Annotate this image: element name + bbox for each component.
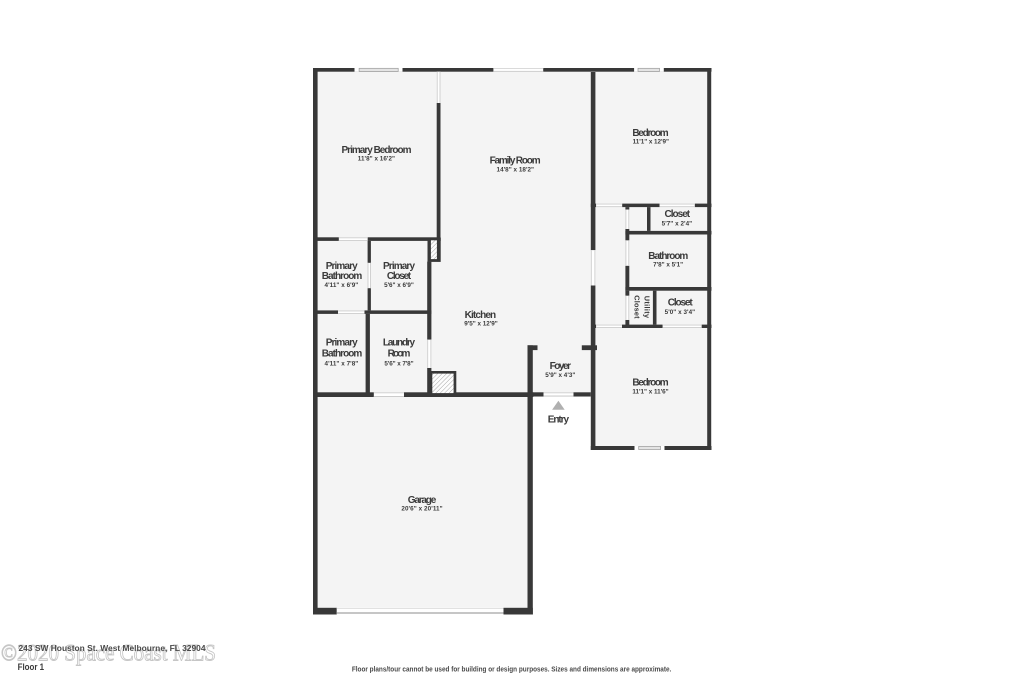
svg-text:Laundry: Laundry	[383, 338, 416, 349]
svg-text:Closet: Closet	[668, 297, 694, 308]
svg-text:5'6" x 7'8": 5'6" x 7'8"	[384, 360, 413, 367]
svg-text:Bathroom: Bathroom	[322, 349, 363, 360]
svg-text:Floor 1: Floor 1	[18, 662, 45, 673]
svg-text:9'5" x 12'9": 9'5" x 12'9"	[464, 321, 498, 328]
svg-text:4'11" x 7'8": 4'11" x 7'8"	[325, 360, 359, 367]
svg-text:Closet: Closet	[387, 271, 412, 282]
svg-text:20'6" x 20'11": 20'6" x 20'11"	[401, 506, 442, 513]
svg-text:Utility: Utility	[643, 296, 652, 319]
svg-text:14'8" x 18'2": 14'8" x 18'2"	[497, 166, 535, 173]
svg-text:Primary: Primary	[326, 338, 358, 349]
svg-text:Bathroom: Bathroom	[648, 251, 688, 262]
svg-text:11'8" x 16'2": 11'8" x 16'2"	[358, 156, 395, 163]
svg-text:11'1" x 11'6": 11'1" x 11'6"	[632, 388, 668, 395]
svg-text:4'11" x 6'9": 4'11" x 6'9"	[325, 282, 359, 289]
svg-text:Floor plans/tour cannot be use: Floor plans/tour cannot be used for buil…	[352, 665, 672, 674]
svg-text:Bedroom: Bedroom	[632, 128, 668, 139]
svg-text:243 SW Houston St. West Melbou: 243 SW Houston St. West Melbourne, FL 32…	[19, 644, 207, 653]
svg-text:Closet: Closet	[632, 295, 641, 319]
svg-text:Bathroom: Bathroom	[322, 271, 363, 282]
svg-text:Kitchen: Kitchen	[465, 310, 497, 321]
svg-text:5'7" x 2'4": 5'7" x 2'4"	[662, 221, 693, 228]
svg-text:Primary Bedroom: Primary Bedroom	[342, 145, 412, 156]
svg-text:Room: Room	[388, 349, 411, 360]
svg-text:5'6" x 6'9": 5'6" x 6'9"	[384, 282, 414, 289]
svg-text:Closet: Closet	[664, 209, 690, 220]
svg-text:5'9" x 4'3": 5'9" x 4'3"	[545, 372, 575, 379]
svg-text:5'0" x 3'4": 5'0" x 3'4"	[665, 309, 696, 316]
svg-text:Family Room: Family Room	[490, 156, 541, 167]
svg-text:Bedroom: Bedroom	[632, 378, 668, 389]
svg-text:7'8" x 5'1": 7'8" x 5'1"	[653, 261, 683, 268]
svg-text:11'1" x 12'9": 11'1" x 12'9"	[633, 138, 669, 145]
svg-text:Foyer: Foyer	[550, 361, 571, 372]
svg-text:Entry: Entry	[548, 414, 570, 425]
